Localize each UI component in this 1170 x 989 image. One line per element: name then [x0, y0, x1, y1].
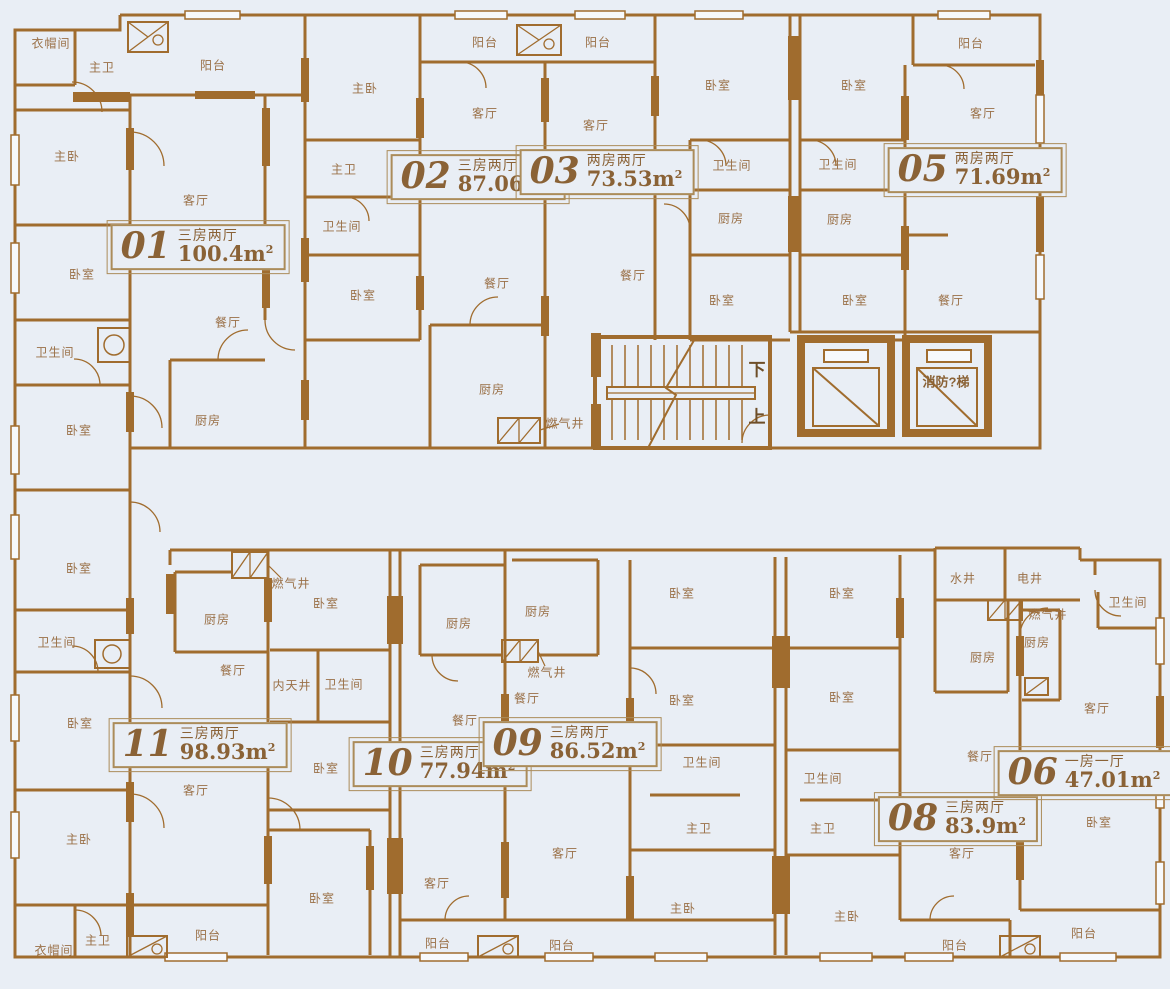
gas-shaft [232, 552, 268, 578]
elevator-fire [906, 339, 988, 433]
gas-shaft [498, 418, 540, 443]
outer-walls [15, 15, 1160, 957]
gas-shaft [502, 640, 538, 662]
wall-piers [73, 36, 1164, 935]
elevator-left [801, 339, 891, 433]
bathroom-fixtures [95, 328, 130, 668]
floor-plan-drawing [0, 0, 1170, 989]
floor-plan: 衣帽间主卫阳台主卧客厅卧室餐厅卫生间卧室厨房主卧阳台阳台客厅主卫卫生间卧室餐厅厨… [0, 0, 1170, 989]
walls-layer [15, 15, 1160, 957]
gas-shaft [1025, 678, 1048, 695]
hatch-box [517, 25, 561, 55]
gas-leader-lines [268, 424, 1040, 666]
gas-shaft [988, 600, 1022, 620]
hatch-box [128, 22, 168, 52]
windows-layer [11, 11, 1164, 961]
hatch-box [478, 936, 518, 957]
doors-layer [72, 62, 1121, 936]
hatch-box [1000, 936, 1040, 957]
hatch-box [127, 936, 167, 957]
